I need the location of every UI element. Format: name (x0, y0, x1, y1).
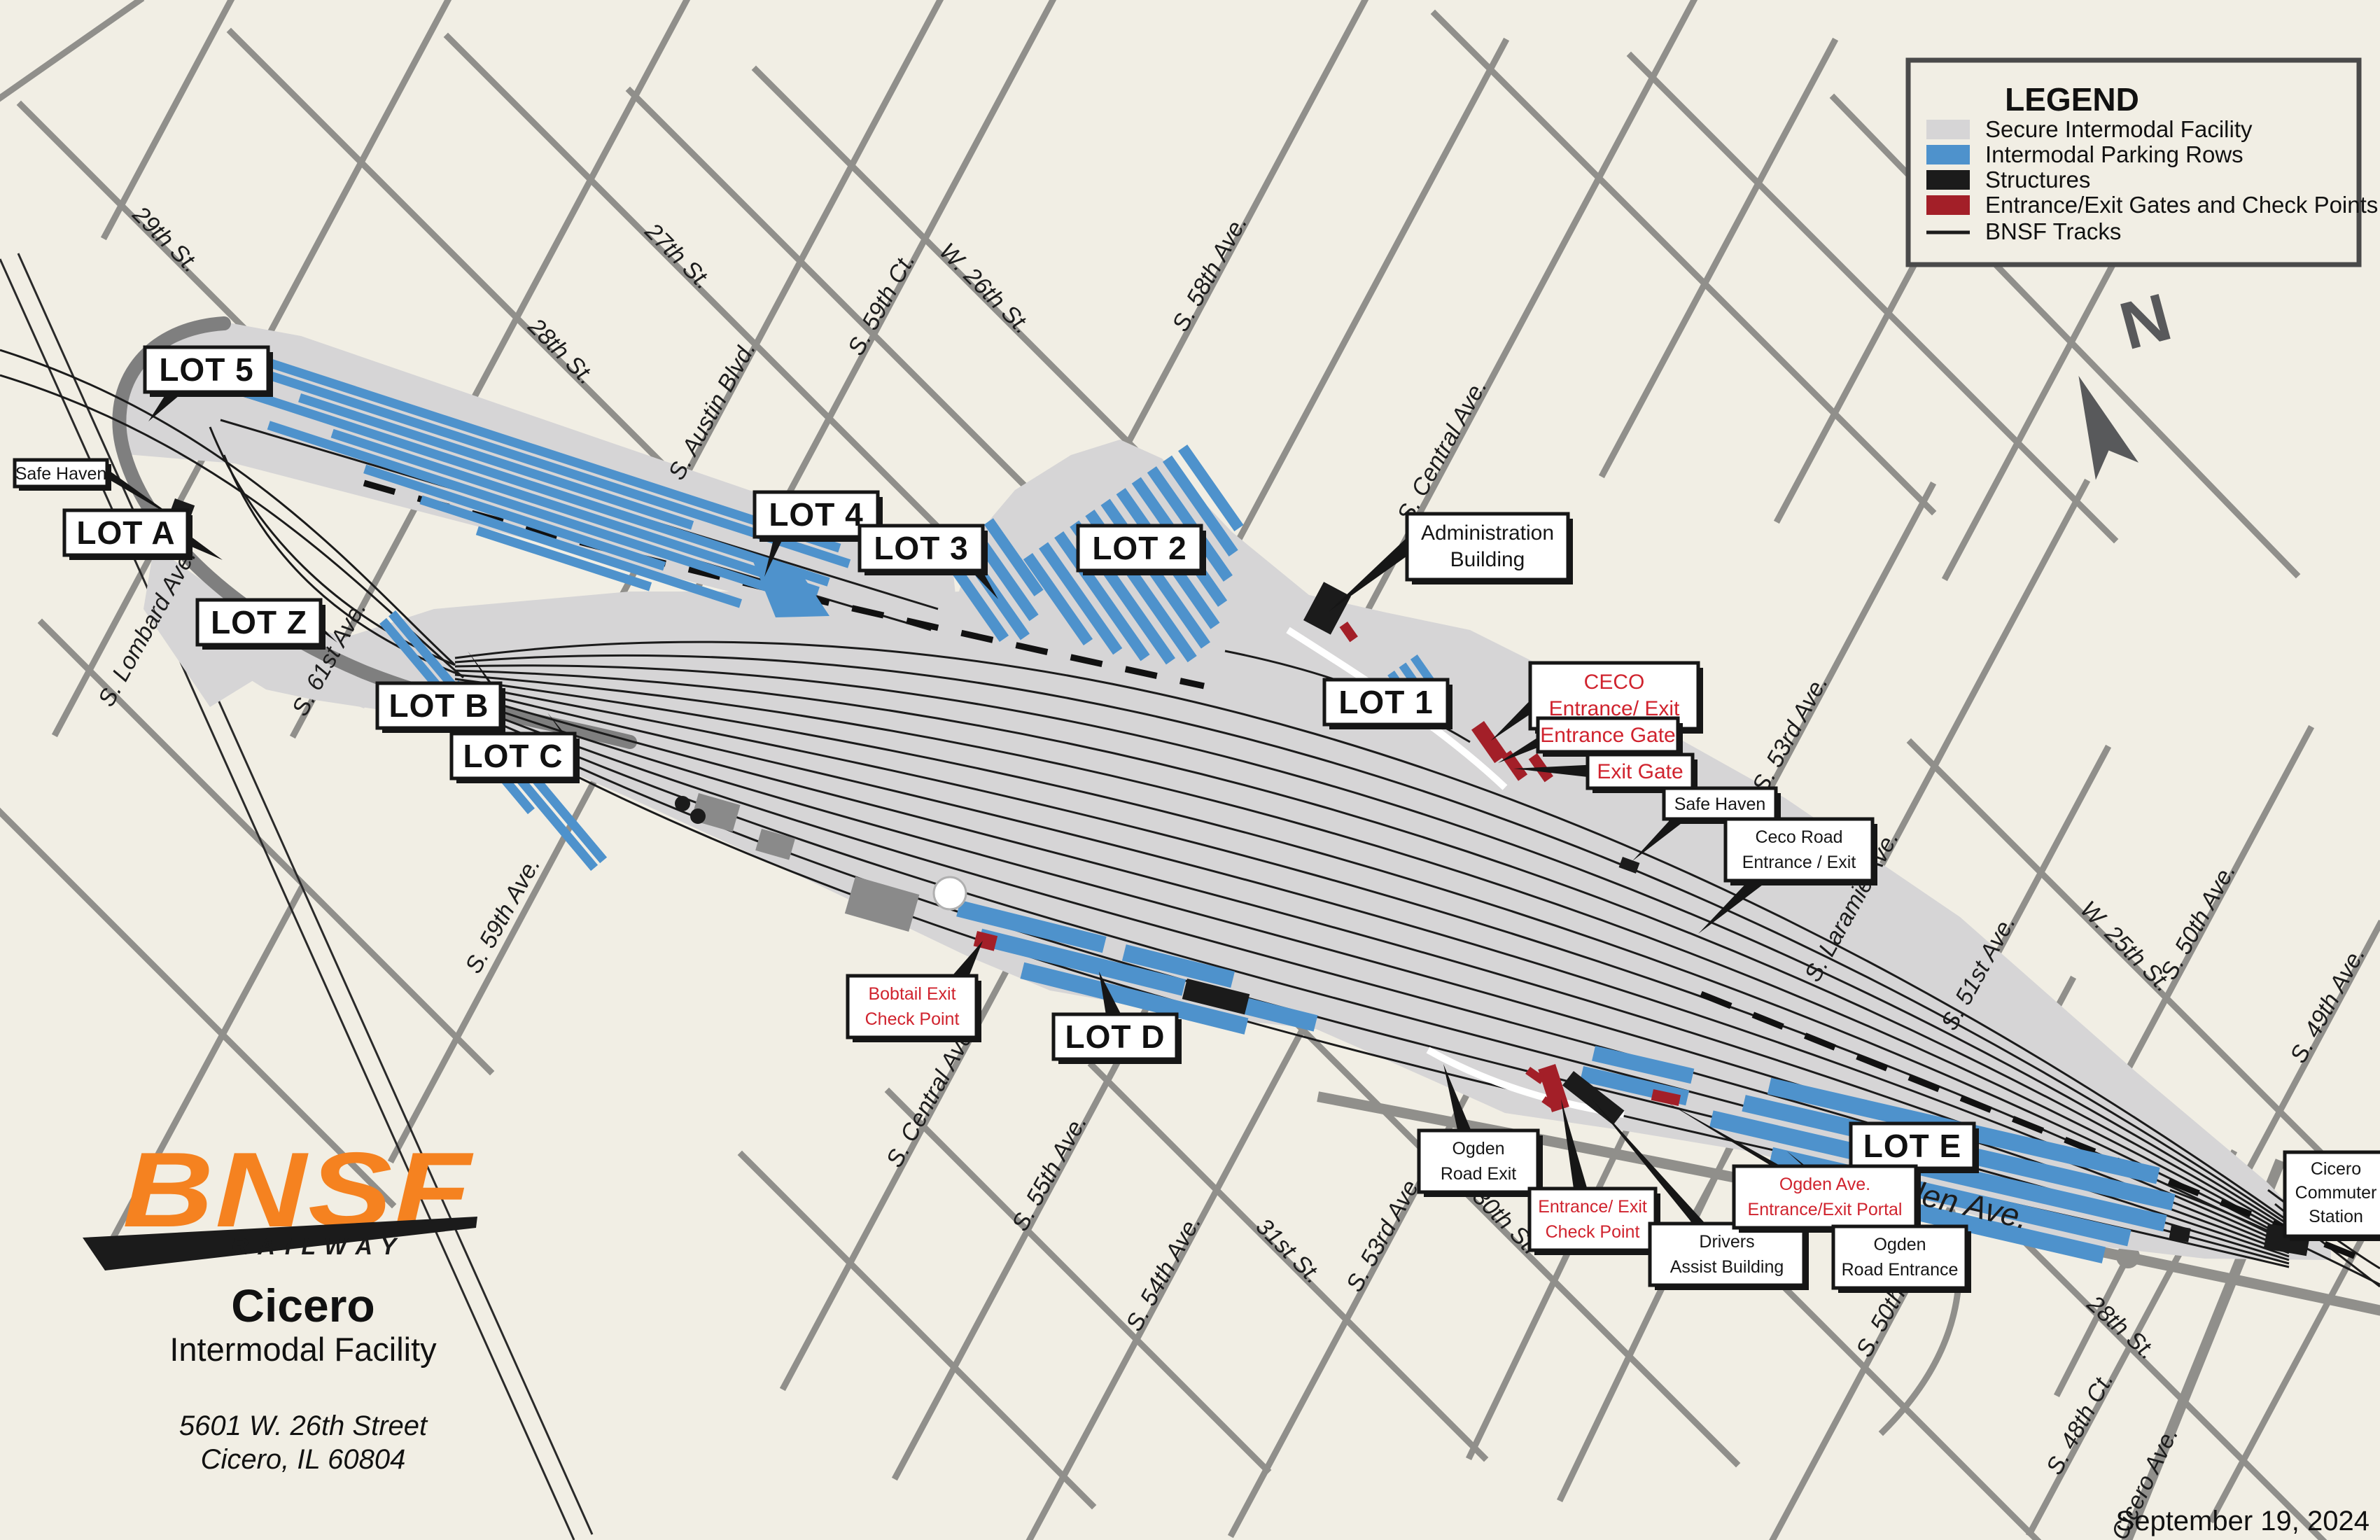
legend-item-label: BNSF Tracks (1985, 218, 2121, 244)
legend-item-label: Intermodal Parking Rows (1985, 141, 2243, 167)
legend-item-label: Secure Intermodal Facility (1985, 116, 2253, 142)
svg-text:Entrance/ Exit: Entrance/ Exit (1538, 1197, 1647, 1217)
facility-address-line2: Cicero, IL 60804 (201, 1444, 406, 1475)
legend-swatch-facility (1926, 120, 1970, 139)
lot-label-1: LOT 1 (1324, 680, 1452, 729)
bnsf-railway-text: RAILWAY (231, 1233, 406, 1260)
callout-administration-building: Administration Building (1407, 514, 1573, 584)
svg-text:LOT A: LOT A (76, 514, 175, 551)
svg-text:Safe Haven: Safe Haven (15, 464, 107, 484)
callout-entrance-gate: Entrance Gate (1538, 718, 1683, 757)
callout-safe-haven-west: Safe Haven (15, 460, 111, 491)
lot-label-a: LOT A (64, 510, 192, 560)
lot-label-c: LOT C (451, 734, 580, 783)
svg-text:Road Exit: Road Exit (1441, 1164, 1516, 1184)
svg-text:Administration: Administration (1421, 521, 1554, 545)
svg-text:Station: Station (2309, 1207, 2363, 1226)
callout-entrance-exit-check-point: Entrance/ Exit Check Point (1529, 1189, 1660, 1255)
callout-ogden-road-entrance: Ogden Road Entrance (1833, 1226, 1971, 1293)
legend-title: LEGEND (2005, 81, 2139, 118)
cicero-intermodal-facility-map: 29th St. 27th St. 28th St. S. Austin Blv… (0, 0, 2380, 1540)
svg-text:LOT 2: LOT 2 (1092, 530, 1186, 566)
facility-address-line1: 5601 W. 26th Street (179, 1410, 428, 1441)
lot-label-5: LOT 5 (145, 347, 273, 397)
legend: LEGEND Secure Intermodal Facility Interm… (1908, 60, 2378, 265)
svg-text:Assist Building: Assist Building (1670, 1257, 1784, 1277)
svg-text:Safe Haven: Safe Haven (1674, 794, 1766, 814)
svg-text:CECO: CECO (1584, 671, 1645, 694)
lot-label-d: LOT D (1053, 1014, 1182, 1064)
callout-ogden-ave-entrance-exit-portal: Ogden Ave. Entrance/Exit Portal (1734, 1166, 1921, 1233)
svg-text:Ceco Road: Ceco Road (1755, 827, 1842, 847)
callout-ceco-road-entrance-exit: Ceco Road Entrance / Exit (1725, 819, 1877, 885)
callout-bobtail-exit-check-point: Bobtail Exit Check Point (848, 976, 981, 1042)
svg-text:Exit Gate: Exit Gate (1597, 760, 1683, 783)
facility-type: Intermodal Facility (169, 1331, 437, 1368)
map-date: September 19, 2024 (2116, 1506, 2369, 1536)
yard-circle (934, 877, 966, 909)
svg-text:Ogden: Ogden (1873, 1235, 1926, 1254)
svg-text:LOT D: LOT D (1065, 1018, 1165, 1055)
svg-text:Drivers: Drivers (1699, 1232, 1754, 1252)
yard-dot (690, 808, 706, 824)
svg-text:LOT 5: LOT 5 (159, 351, 253, 388)
yard-dot (675, 796, 690, 811)
svg-text:Entrance/Exit Portal: Entrance/Exit Portal (1748, 1200, 1903, 1219)
callout-cicero-commuter-station: Cicero Commuter Station (2285, 1152, 2380, 1241)
svg-text:LOT 1: LOT 1 (1338, 684, 1433, 720)
svg-text:Check Point: Check Point (865, 1009, 960, 1029)
svg-text:Ogden: Ogden (1452, 1139, 1504, 1158)
legend-swatch-structures (1926, 170, 1970, 190)
facility-city: Cicero (231, 1280, 374, 1331)
callout-ogden-road-exit: Ogden Road Exit (1419, 1130, 1543, 1197)
svg-text:Commuter: Commuter (2295, 1183, 2377, 1203)
svg-text:Entrance Gate: Entrance Gate (1540, 724, 1675, 747)
legend-item-label: Structures (1985, 167, 2090, 192)
callout-drivers-assist-building: Drivers Assist Building (1650, 1224, 1809, 1290)
svg-text:LOT B: LOT B (389, 687, 489, 724)
svg-text:LOT C: LOT C (463, 738, 563, 774)
lot-label-b: LOT B (377, 683, 505, 733)
svg-text:Building: Building (1450, 548, 1525, 571)
svg-text:LOT 3: LOT 3 (874, 530, 968, 566)
svg-text:Ogden Ave.: Ogden Ave. (1779, 1175, 1870, 1194)
lot-label-3: LOT 3 (860, 526, 988, 575)
svg-text:LOT 4: LOT 4 (769, 496, 863, 533)
svg-text:Check Point: Check Point (1546, 1222, 1640, 1242)
legend-swatch-gates (1926, 195, 1970, 215)
svg-text:Cicero: Cicero (2311, 1159, 2361, 1179)
lot-label-z: LOT Z (197, 600, 325, 650)
svg-text:LOT Z: LOT Z (211, 604, 307, 640)
svg-text:Road Entrance: Road Entrance (1842, 1260, 1959, 1280)
svg-text:Bobtail Exit: Bobtail Exit (868, 984, 955, 1004)
legend-item-label: Entrance/Exit Gates and Check Points (1985, 192, 2378, 218)
svg-text:LOT E: LOT E (1863, 1128, 1961, 1164)
svg-text:Entrance / Exit: Entrance / Exit (1742, 853, 1856, 872)
legend-swatch-parking (1926, 145, 1970, 164)
lot-label-2: LOT 2 (1078, 526, 1206, 575)
